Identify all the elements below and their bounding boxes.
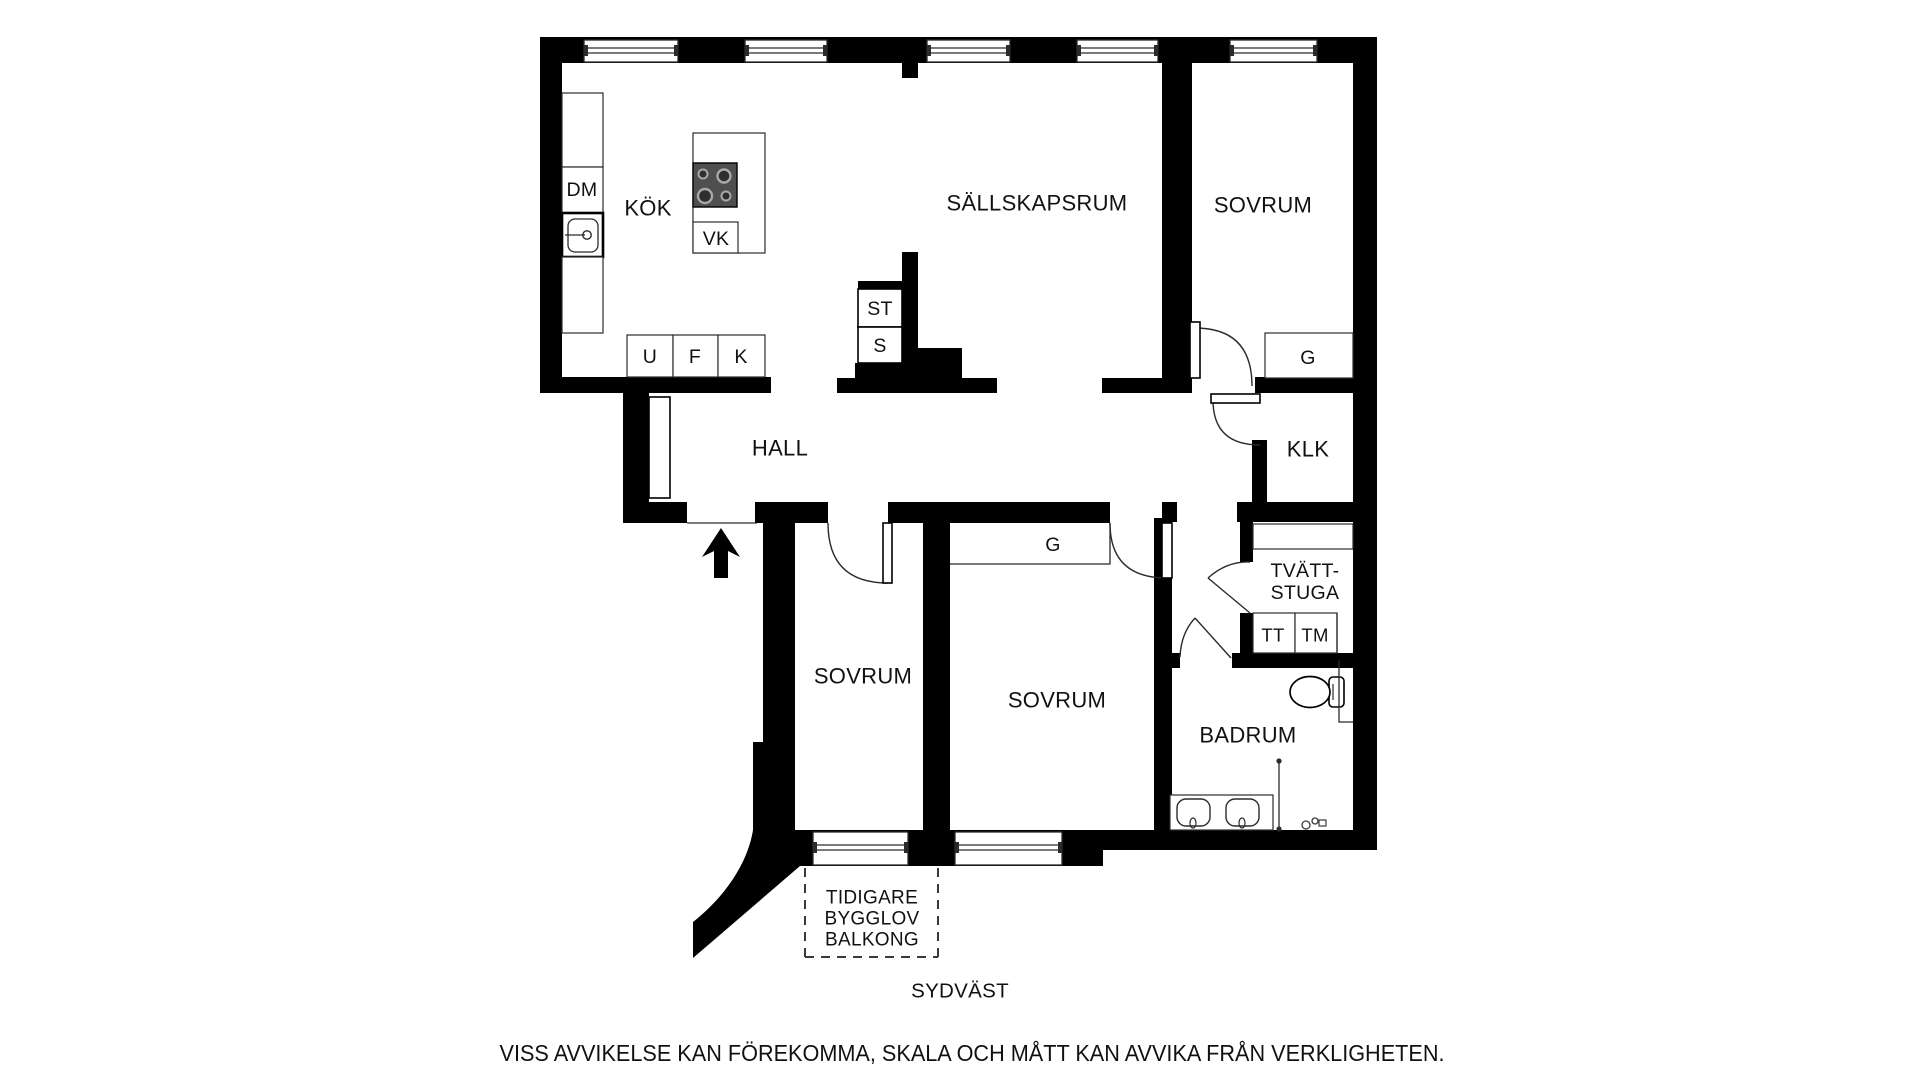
toilet	[1290, 677, 1344, 708]
wall-bedrooms-divider	[923, 523, 950, 830]
wall-klk-laundry	[1237, 502, 1377, 522]
fixture-label-s: S	[873, 335, 886, 357]
stove-hob	[693, 163, 737, 207]
wall-klk-top	[1255, 377, 1353, 393]
window-living-2	[1077, 40, 1158, 62]
wall-bedroom-sw-left	[763, 523, 795, 830]
window-bedroom-ne	[1230, 40, 1317, 62]
bathroom-vanity	[1170, 795, 1273, 830]
fixture-label-dryer: TT	[1261, 625, 1284, 646]
room-label-kitchen: KÖK	[624, 196, 671, 221]
floor-plan-page: KÖK SÄLLSKAPSRUM SOVRUM HALL KLK TVÄTT- …	[0, 0, 1920, 1080]
fixture-label-wardrobe-ne: G	[1300, 347, 1315, 369]
room-label-hall: HALL	[752, 436, 808, 461]
laundry-shelf	[1253, 524, 1353, 549]
disclaimer-text: VISS AVVIKELSE KAN FÖREKOMMA, SKALA OCH …	[500, 1039, 1445, 1066]
wall-bottom-right	[1103, 830, 1377, 850]
kitchen-sink	[562, 213, 603, 257]
wall-right-outer	[1353, 37, 1377, 850]
front-door-leaf	[649, 397, 670, 498]
room-label-bathroom: BADRUM	[1199, 723, 1296, 748]
room-label-laundry-1: TVÄTT-	[1271, 560, 1340, 582]
window-bedroom-s	[955, 832, 1062, 865]
wall-hall-corner	[623, 502, 687, 523]
door-leaf-bedroom-s	[1162, 523, 1172, 578]
fixture-label-wardrobe-s: G	[1045, 534, 1060, 556]
page-background	[0, 0, 1920, 1080]
wall-bathroom-top-stub	[1172, 653, 1180, 668]
wall-living-bedroom-divider	[1162, 37, 1192, 393]
wall-hall-left	[623, 393, 649, 503]
kitchen-counter-upper	[562, 93, 603, 167]
room-label-bedroom-s: SOVRUM	[1008, 688, 1106, 713]
room-label-living: SÄLLSKAPSRUM	[947, 191, 1128, 216]
wall-top-pier-stub	[902, 63, 918, 78]
room-label-laundry-2: STUGA	[1271, 582, 1340, 604]
door-leaf-bedroom-sw	[883, 523, 892, 583]
door-leaf-bedroom-ne	[1190, 322, 1200, 378]
fixture-label-hob: VK	[703, 228, 730, 250]
wall-hall-bottom-a	[755, 502, 828, 523]
wall-living-south-mid	[1102, 378, 1188, 393]
fixture-label-u: U	[643, 346, 657, 368]
wall-kitchen-bottom	[540, 377, 771, 393]
wall-bedroom-sw-left-widening	[753, 742, 763, 830]
balcony-note-line2: BYGGLOV	[824, 909, 919, 930]
door-leaf-klk	[1211, 394, 1260, 403]
wall-klk-left	[1252, 440, 1267, 503]
room-label-bedroom-sw: SOVRUM	[814, 664, 912, 689]
fixture-label-f: F	[689, 346, 701, 368]
fixture-label-st: ST	[867, 298, 893, 320]
window-living-1	[927, 40, 1010, 62]
wall-laundry-left-a	[1240, 522, 1253, 562]
fixture-label-dishwasher: DM	[567, 179, 598, 201]
wall-laundry-left-b	[1240, 613, 1253, 655]
window-kitchen-2	[745, 40, 827, 62]
balcony-note-line1: TIDIGARE	[826, 888, 918, 909]
room-label-bedroom-ne: SOVRUM	[1214, 193, 1312, 218]
floor-plan-drawing: KÖK SÄLLSKAPSRUM SOVRUM HALL KLK TVÄTT- …	[0, 0, 1920, 1080]
wall-st-closet-base	[855, 363, 918, 378]
wall-st-closet-cap	[858, 281, 902, 289]
wall-bathroom-top	[1232, 653, 1355, 668]
balcony-note-line3: BALKONG	[825, 930, 919, 951]
wall-living-south-left	[837, 378, 997, 393]
fixture-label-washer: TM	[1301, 625, 1328, 646]
wall-hall-bottom-b	[888, 502, 1110, 523]
compass-label: SYDVÄST	[911, 980, 1009, 1003]
wall-st-closet-stub	[918, 348, 962, 378]
wall-left-kitchen	[540, 37, 562, 393]
room-label-klk: KLK	[1287, 437, 1330, 462]
window-kitchen-1	[584, 40, 678, 62]
kitchen-counter-lower	[562, 257, 603, 333]
window-bedroom-sw	[813, 832, 908, 865]
fixture-label-k: K	[734, 346, 747, 368]
wall-st-closet-spine	[902, 252, 918, 378]
